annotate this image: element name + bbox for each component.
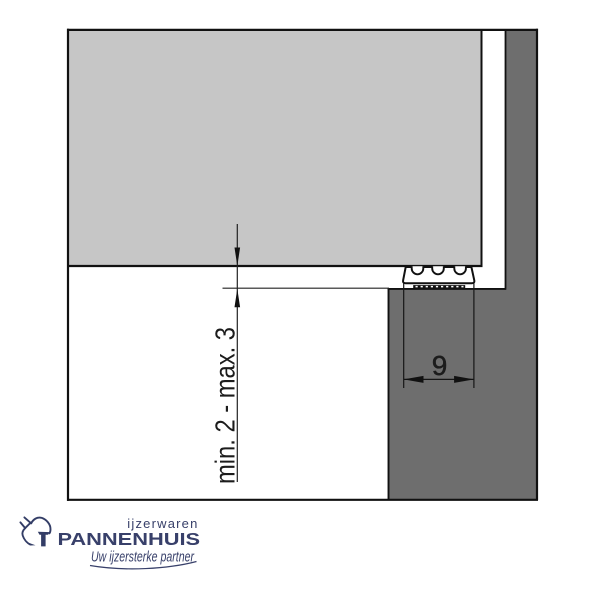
svg-text:Uw ijzersterke partner: Uw ijzersterke partner [91,550,195,566]
svg-text:PANNENHUIS: PANNENHUIS [58,530,201,550]
svg-text:min. 2 - max. 3: min. 2 - max. 3 [210,327,241,484]
svg-text:ijzerwaren: ijzerwaren [127,516,198,531]
svg-text:9: 9 [432,350,448,381]
